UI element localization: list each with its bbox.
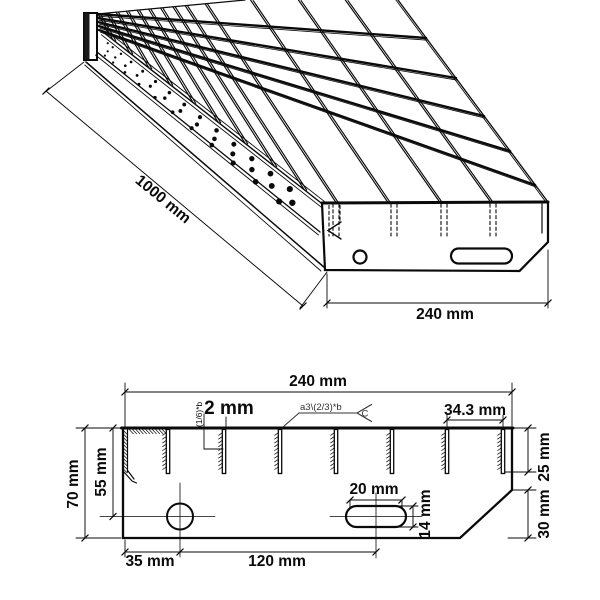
dim-14mm-label: 14 mm — [417, 489, 434, 538]
dim-20mm-label: 20 mm — [349, 481, 398, 498]
far-end-plate-edge — [85, 14, 90, 60]
dim-1000mm-label: 1000 mm — [132, 172, 194, 227]
dim-34mm-label: 34.3 mm — [444, 402, 506, 419]
bolt-hole-iso — [354, 251, 367, 264]
iso-view: 1000 mm 240 mm — [44, 0, 548, 323]
serration-note-label: (1/6)*b — [194, 402, 204, 427]
ext-line — [44, 62, 84, 93]
dim-2mm-label: 2 mm — [204, 398, 254, 419]
dim-240mm-iso-label: 240 mm — [416, 306, 474, 323]
back-edge — [97, 0, 245, 14]
front-bottom-edge — [86, 62, 325, 268]
dim-240mm-label: 240 mm — [289, 373, 347, 390]
dim-120mm-label: 120 mm — [248, 553, 306, 570]
dim-25mm-label: 25 mm — [536, 432, 553, 481]
section-view: 240 mm 2 mm (1/6)*b a3\(2/3)*b C 34.3 mm… — [43, 88, 553, 570]
dim-70mm-label: 70 mm — [65, 459, 82, 508]
technical-drawing-page: 1000 mm 240 mm 240 mm 2 mm (1/6)*b — [0, 0, 600, 600]
end-plate-top-edge — [322, 202, 548, 203]
slot-hole-iso — [451, 249, 512, 264]
strip-outer-edge — [97, 52, 320, 232]
weld-note-label: a3\(2/3)*b — [300, 402, 342, 413]
weld-leader — [283, 413, 299, 427]
weld-tail-label: C — [362, 409, 369, 420]
grating-step-drawing: 1000 mm 240 mm 240 mm 2 mm (1/6)*b — [0, 0, 600, 600]
dim-35mm-label: 35 mm — [125, 553, 174, 570]
dim-30mm-label: 30 mm — [536, 489, 553, 538]
dim-55mm-label: 55 mm — [93, 447, 110, 496]
ext-line — [300, 272, 327, 308]
